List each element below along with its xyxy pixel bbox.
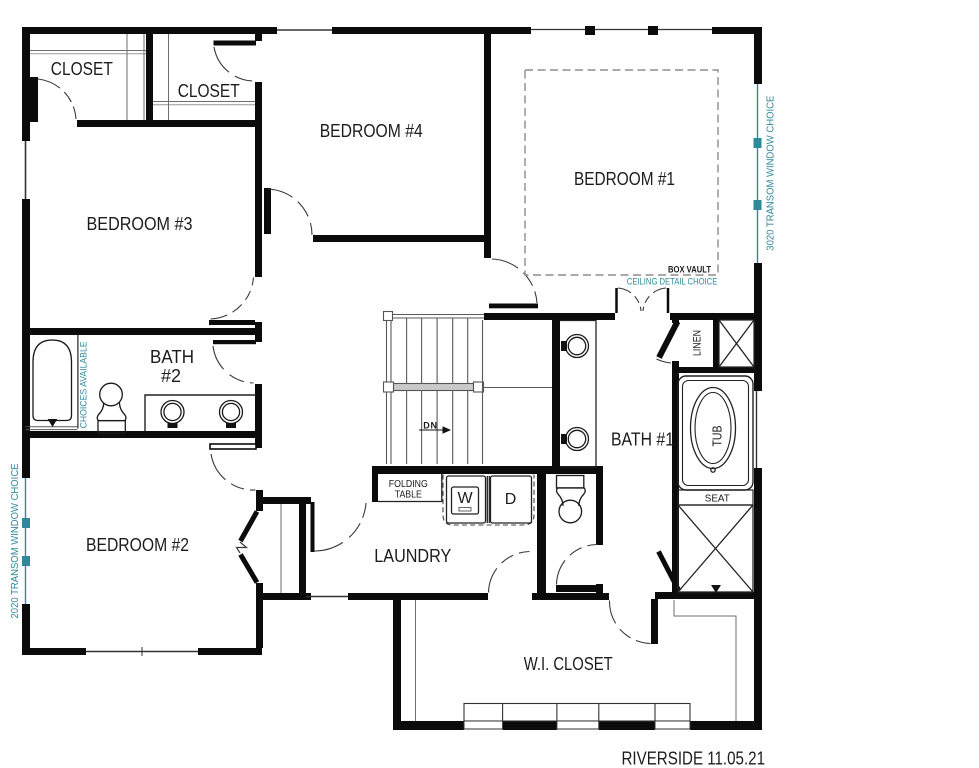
svg-text:FOLDING: FOLDING xyxy=(389,479,428,490)
svg-text:#2: #2 xyxy=(161,366,181,386)
svg-text:RIVERSIDE 11.05.21: RIVERSIDE 11.05.21 xyxy=(622,749,766,768)
svg-text:CHOICES AVAILABLE: CHOICES AVAILABLE xyxy=(78,341,89,428)
svg-text:CLOSET: CLOSET xyxy=(178,81,240,101)
svg-text:BEDROOM #3: BEDROOM #3 xyxy=(87,214,193,234)
svg-text:W: W xyxy=(457,490,473,507)
svg-text:TABLE: TABLE xyxy=(395,490,422,501)
svg-text:BEDROOM #4: BEDROOM #4 xyxy=(320,121,423,141)
svg-text:CEILING DETAIL CHOICE: CEILING DETAIL CHOICE xyxy=(627,276,718,287)
svg-text:3020 TRANSOM WINDOW CHOICE: 3020 TRANSOM WINDOW CHOICE xyxy=(765,96,777,251)
svg-text:BATH #1: BATH #1 xyxy=(611,430,674,450)
svg-text:BOX VAULT: BOX VAULT xyxy=(668,264,711,275)
svg-text:BEDROOM #2: BEDROOM #2 xyxy=(86,535,189,555)
svg-text:BEDROOM #1: BEDROOM #1 xyxy=(574,169,675,189)
svg-text:W.I. CLOSET: W.I. CLOSET xyxy=(524,654,613,674)
svg-text:DN: DN xyxy=(423,421,438,431)
svg-text:2020 TRANSOM WINDOW CHOICE: 2020 TRANSOM WINDOW CHOICE xyxy=(9,464,21,619)
svg-text:LAUNDRY: LAUNDRY xyxy=(374,546,451,566)
svg-text:SEAT: SEAT xyxy=(705,494,730,505)
svg-text:TUB: TUB xyxy=(711,426,725,447)
svg-text:LINEN: LINEN xyxy=(692,330,704,356)
svg-text:D: D xyxy=(505,491,517,508)
svg-text:BATH: BATH xyxy=(150,347,194,367)
svg-text:CLOSET: CLOSET xyxy=(51,59,113,79)
